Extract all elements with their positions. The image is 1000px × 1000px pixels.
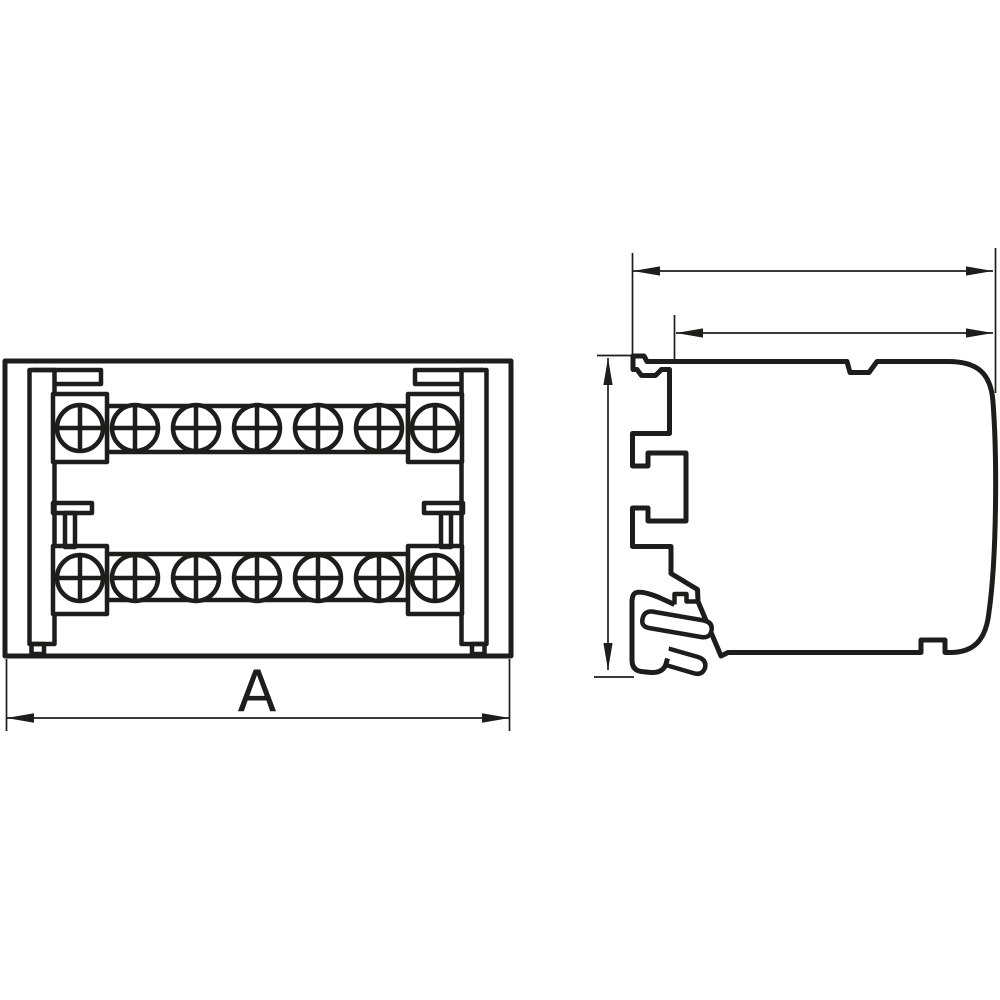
dimension-a-label: A	[238, 659, 277, 725]
latch-tab-left	[53, 503, 92, 547]
screw-terminal	[354, 403, 404, 453]
front-top-step-right	[415, 370, 483, 384]
arrowhead-left-icon	[633, 266, 660, 275]
screw-terminal	[293, 553, 343, 603]
technical-drawing-canvas: A	[0, 0, 1000, 1000]
end-plate-right-foot	[472, 644, 485, 654]
dimension-a: A	[7, 659, 510, 731]
arrowhead-left-icon	[7, 713, 35, 723]
side-view	[594, 248, 996, 677]
screw-terminal	[171, 403, 221, 453]
screws	[55, 403, 460, 603]
arrowhead-left-icon	[676, 328, 703, 337]
screw-terminal	[55, 403, 105, 453]
screw-terminal	[232, 553, 282, 603]
screw-terminal	[110, 403, 160, 453]
front-top-step-left	[33, 370, 101, 384]
arrowhead-right-icon	[482, 713, 510, 723]
front-view: A	[5, 361, 511, 731]
arrowhead-down-icon	[603, 643, 612, 670]
screw-terminal	[171, 553, 221, 603]
latch-tab-left-stem	[65, 513, 75, 547]
latch-tab-right	[424, 503, 463, 547]
arrowhead-right-icon	[966, 266, 993, 275]
side-latch-crown-notch	[675, 594, 698, 605]
side-body-outline	[633, 356, 996, 656]
screw-terminal	[410, 403, 460, 453]
latch-tab-right-stem	[441, 513, 451, 547]
screw-terminal	[232, 403, 282, 453]
screw-terminal	[354, 553, 404, 603]
terminal-block-drawing: A	[0, 0, 1000, 1000]
arrowhead-up-icon	[603, 358, 612, 385]
screw-terminal	[410, 553, 460, 603]
arrowhead-right-icon	[966, 328, 993, 337]
screw-terminal	[110, 553, 160, 603]
end-plate-left-foot	[32, 644, 45, 654]
screw-terminal	[293, 403, 343, 453]
screw-terminal	[55, 553, 105, 603]
